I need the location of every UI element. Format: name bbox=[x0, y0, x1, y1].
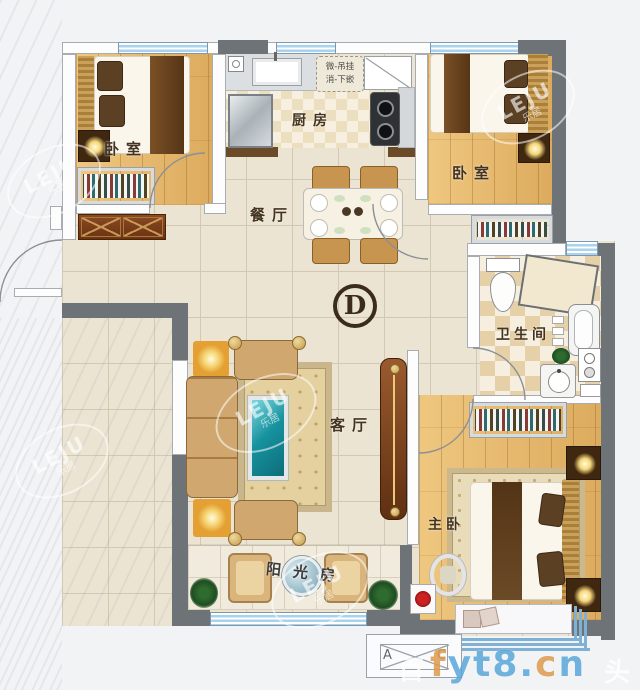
site-watermark: fyt8.cn bbox=[430, 644, 586, 685]
master-door-arc bbox=[419, 399, 473, 453]
site-watermark-letter: t bbox=[473, 644, 492, 685]
site-watermark-letter: 8 bbox=[492, 644, 519, 685]
site-watermark-letter: c bbox=[535, 644, 558, 685]
entry-door-arc bbox=[0, 240, 62, 302]
bedroom1-door-arc bbox=[150, 153, 205, 208]
site-watermark-letter: f bbox=[430, 644, 448, 685]
vent-window-diagonal bbox=[366, 58, 410, 88]
floor-plan-canvas: 微-吊挂 消-下嵌 bbox=[0, 0, 640, 690]
bathroom-door-arc bbox=[473, 348, 525, 400]
site-watermark-letter: . bbox=[519, 644, 535, 685]
site-watermark-letter: y bbox=[448, 644, 473, 685]
faint-watermark-char-left: 百 bbox=[398, 650, 424, 687]
site-watermark-letter: n bbox=[558, 644, 586, 685]
bedroom2-door-arc bbox=[373, 204, 428, 259]
faint-watermark-char-right: 头 bbox=[604, 652, 630, 689]
